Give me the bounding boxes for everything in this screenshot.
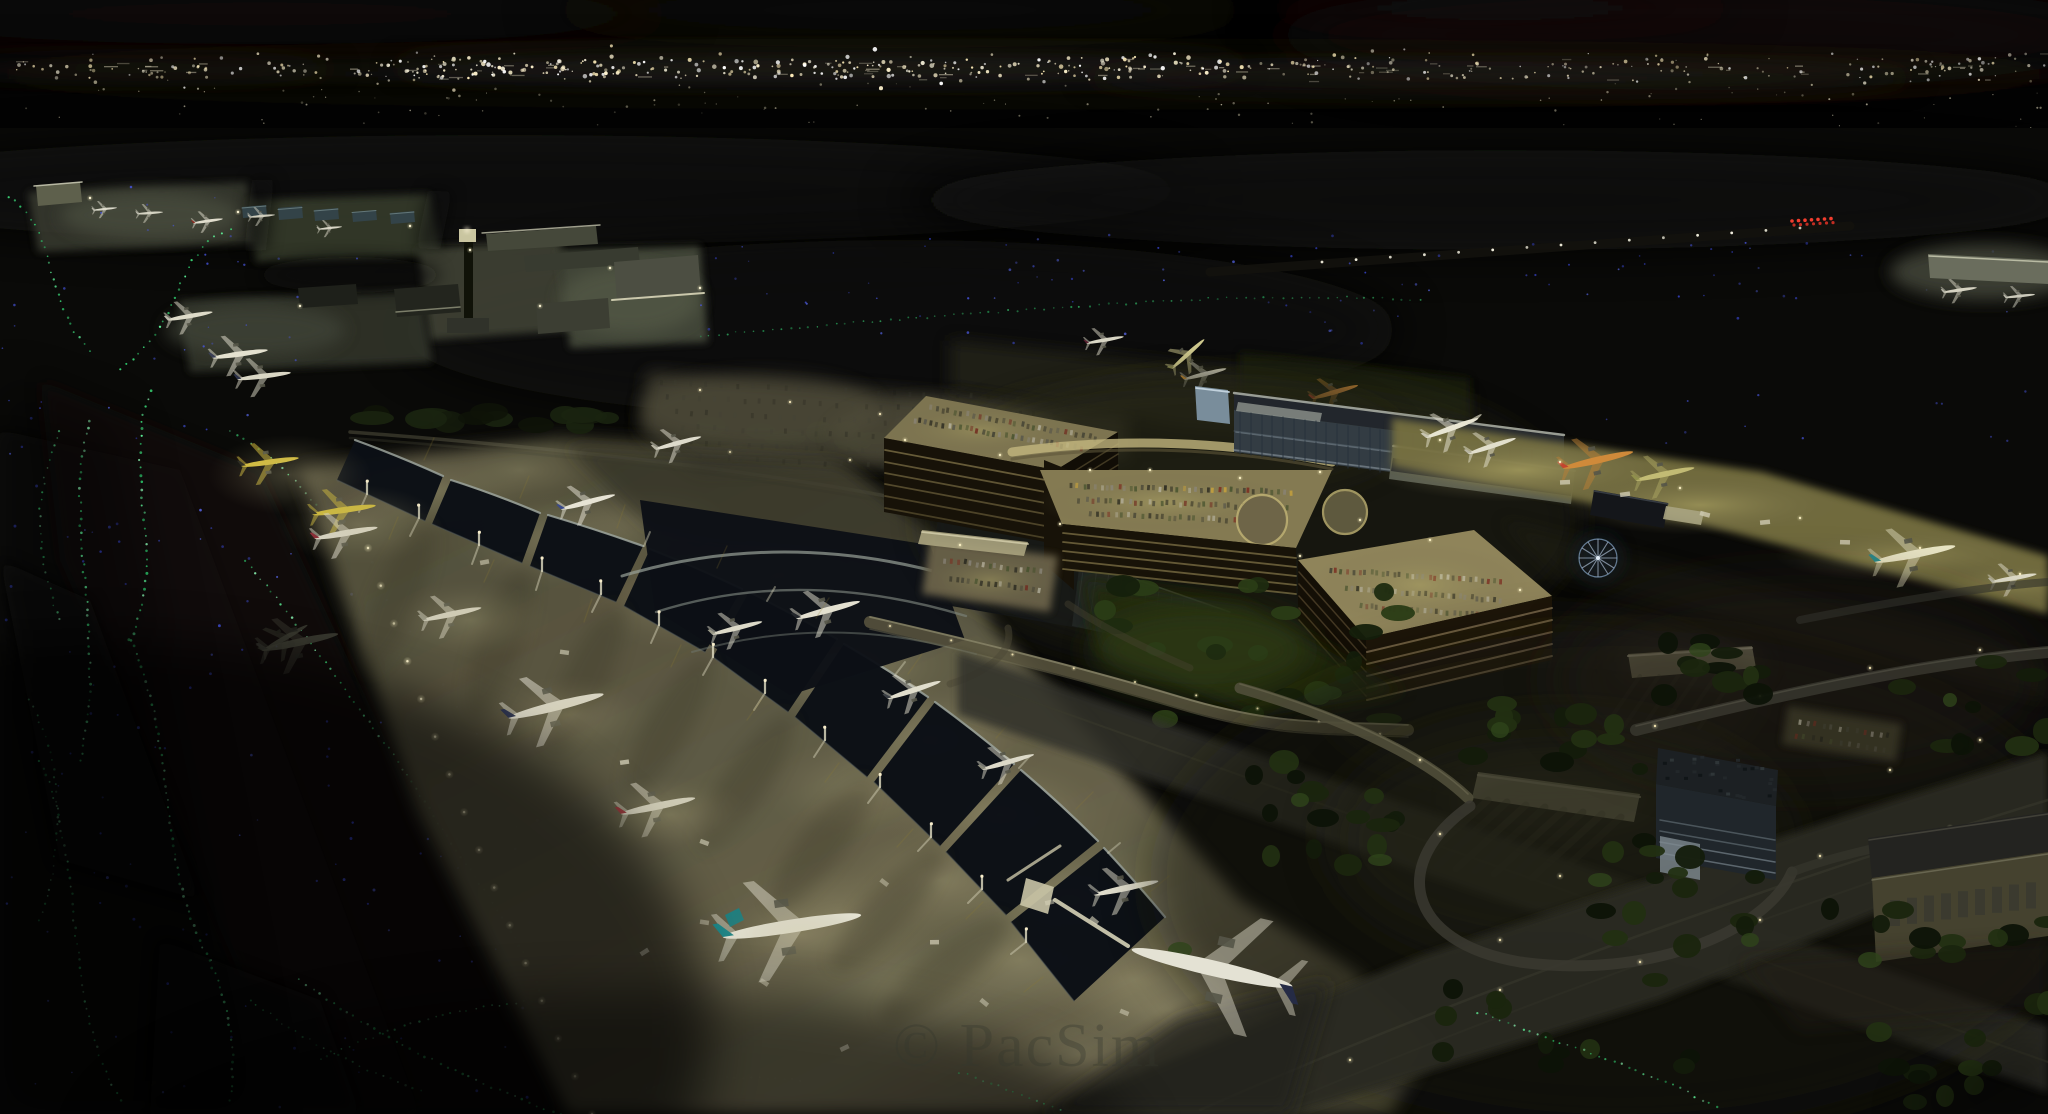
svg-text:© PacSim: © PacSim	[893, 1012, 1161, 1080]
